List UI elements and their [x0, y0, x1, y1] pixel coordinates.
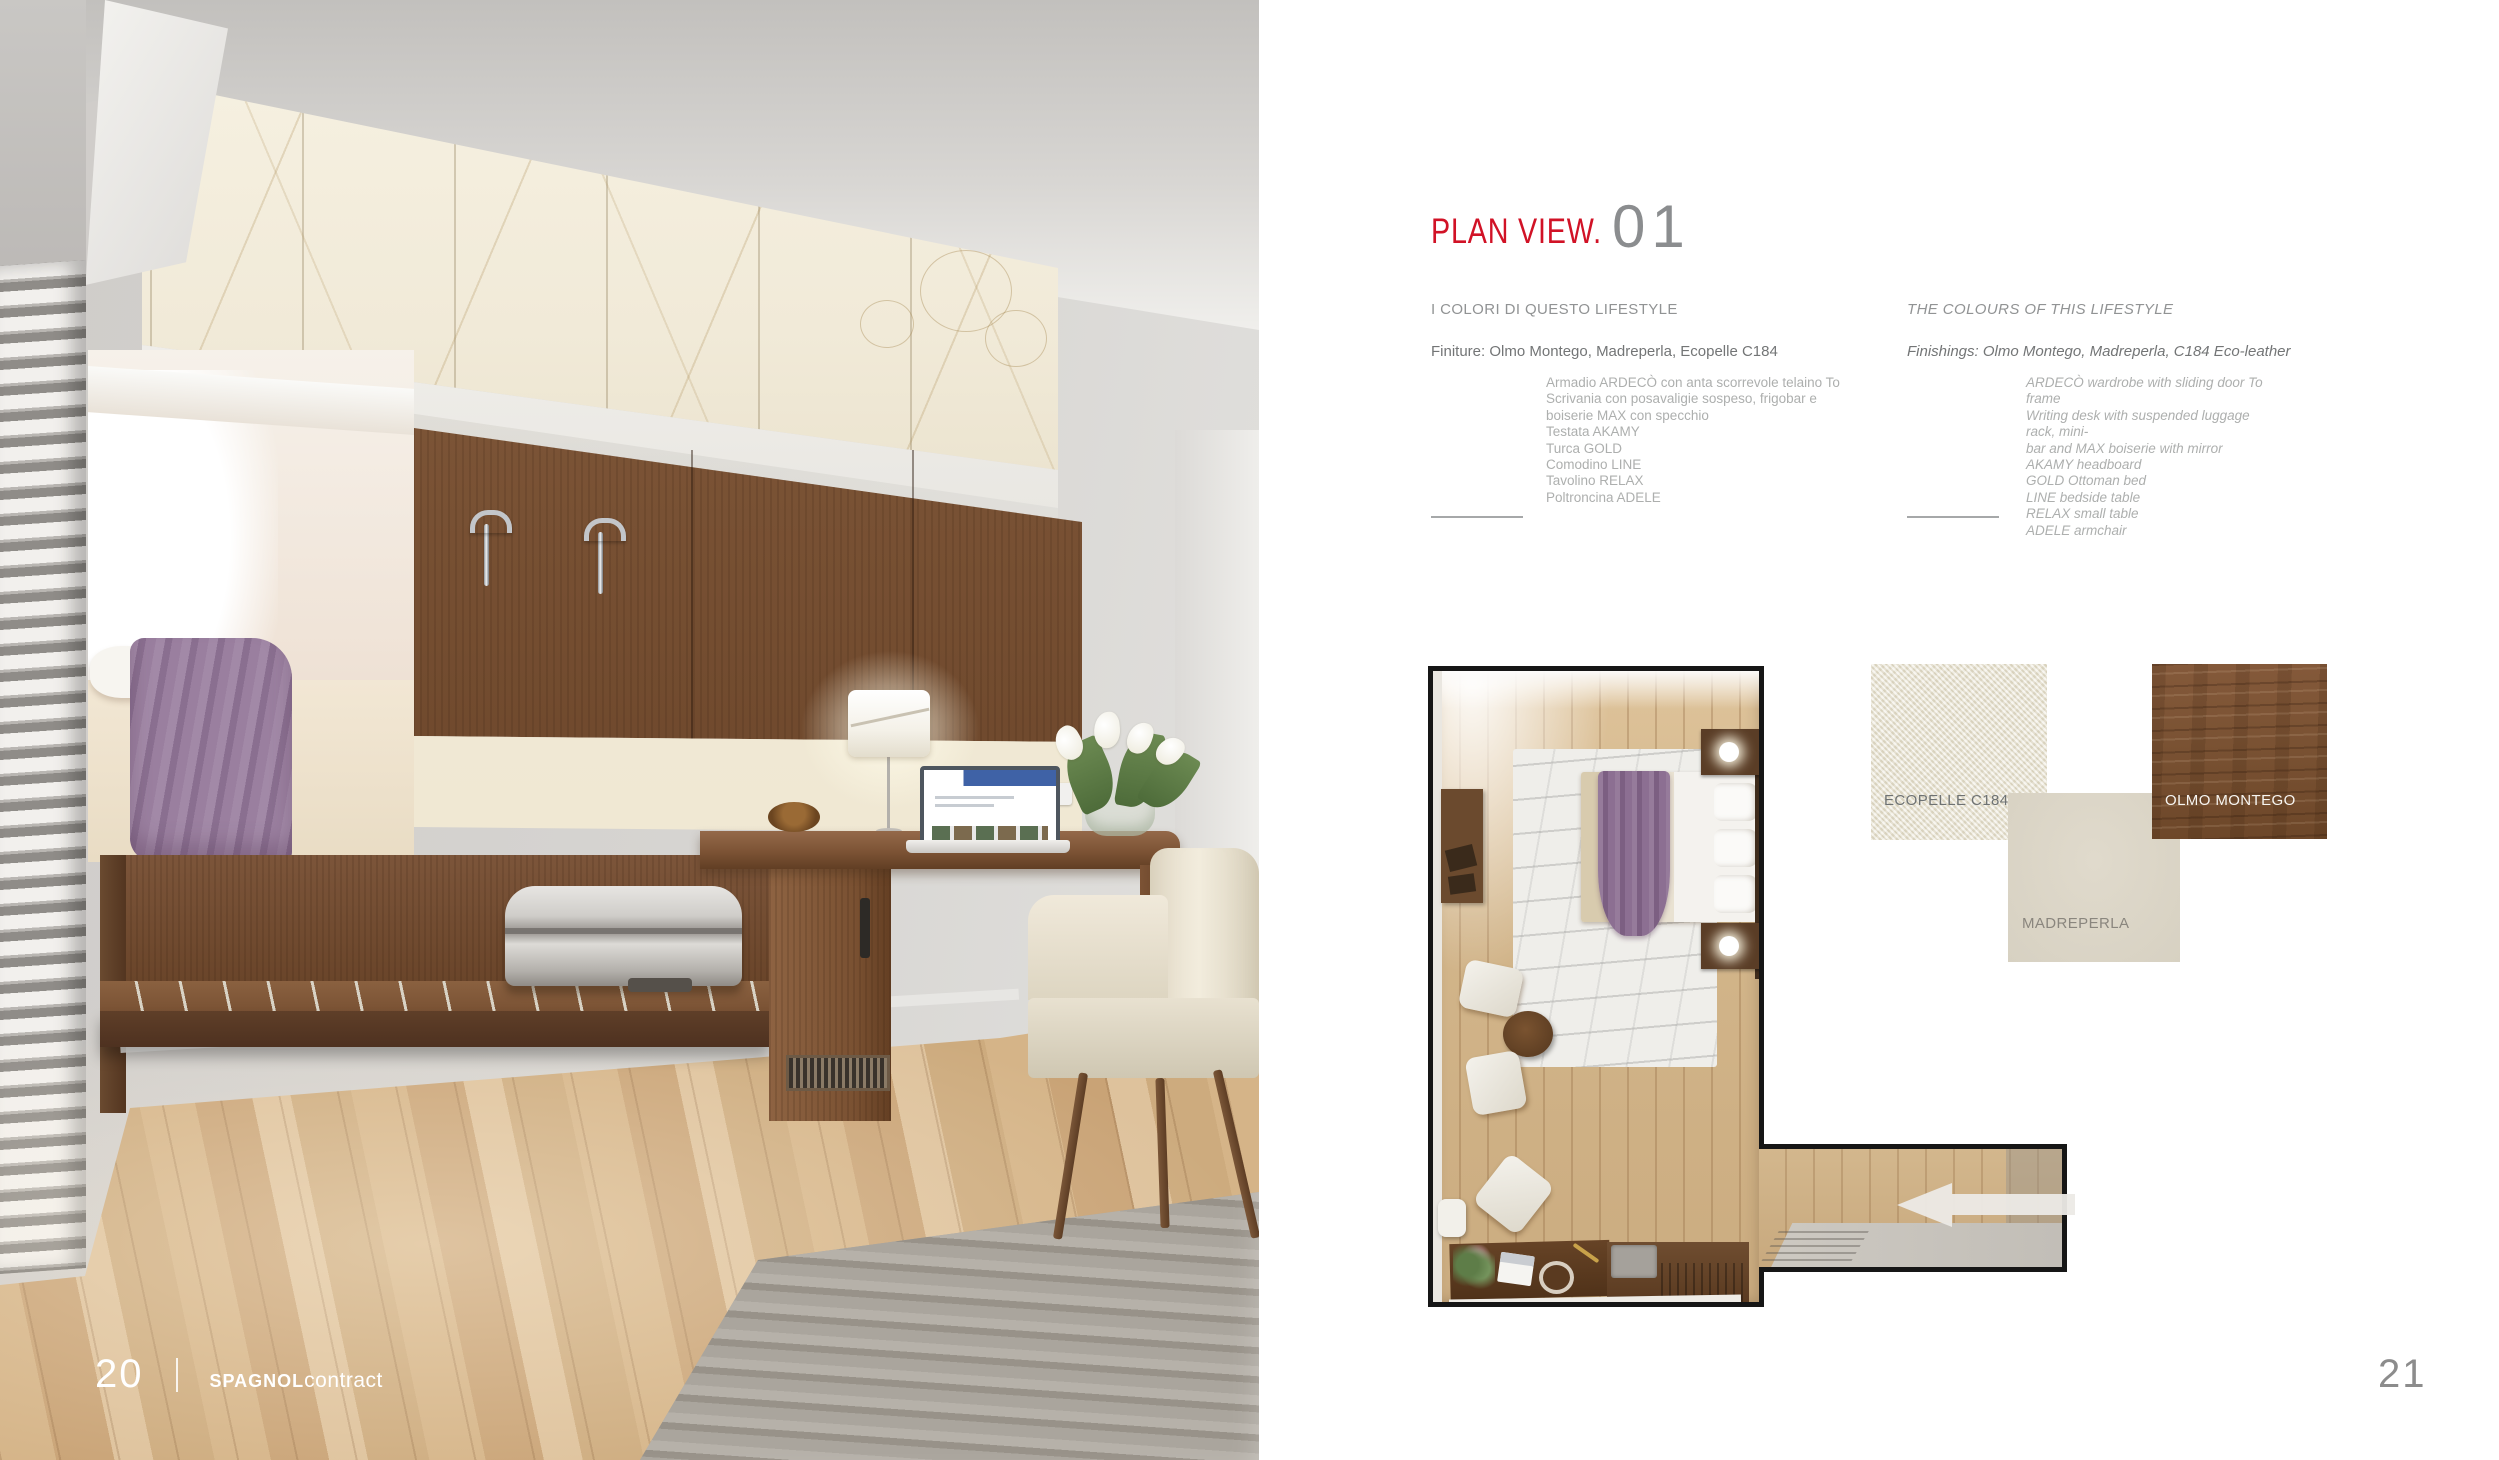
cabinet-decor-circle	[860, 300, 914, 348]
armchair-seat	[1028, 998, 1259, 1078]
desk-lamp-stem	[887, 757, 890, 831]
laptop-text-line	[935, 804, 994, 807]
list-item: RELAX small table	[2026, 506, 2281, 522]
plan-stool	[1438, 1199, 1466, 1237]
suitcase-band	[505, 928, 742, 934]
plan-pillow	[1714, 875, 1758, 913]
plan-bedside-table	[1701, 729, 1761, 775]
plan-pillow	[1714, 783, 1758, 821]
plan-unit-item	[1445, 844, 1477, 872]
plan-armchair	[1472, 1152, 1555, 1236]
plan-bedside-lamp	[1719, 936, 1739, 956]
plan-tray	[1539, 1261, 1574, 1294]
plan-pillow	[1714, 829, 1758, 867]
mirror-purple-throw	[130, 638, 292, 862]
footer-divider	[176, 1358, 178, 1392]
laptop-text-line	[935, 796, 1014, 799]
plan-round-table	[1503, 1011, 1553, 1057]
plan-bedside-table	[1701, 923, 1761, 969]
panel-seam	[691, 450, 693, 740]
list-item: ARDECÒ wardrobe with sliding door To fra…	[2026, 375, 2281, 408]
column-it-list: Armadio ARDECÒ con anta scorrevole telai…	[1546, 375, 1851, 506]
list-item: GOLD Ottoman bed	[2026, 473, 2281, 489]
plan-armchair	[1458, 959, 1525, 1019]
left-pillar	[0, 0, 86, 300]
column-en-rule	[1907, 516, 1999, 518]
minibar-vent	[786, 1055, 890, 1091]
swatch-olmo-montego: OLMO MONTEGO	[2152, 664, 2327, 839]
laptop-keyboard	[906, 840, 1070, 853]
list-item: LINE bedside table	[2026, 490, 2281, 506]
list-item: Poltroncina ADELE	[1546, 490, 1851, 506]
column-it-rule	[1431, 516, 1523, 518]
plan-armchair	[1464, 1050, 1527, 1116]
column-italian: I COLORI DI QUESTO LIFESTYLE Finiture: O…	[1431, 301, 1851, 506]
cabinet-decor-circle	[985, 310, 1047, 367]
plan-suitcase	[1611, 1245, 1657, 1278]
list-item: bar and MAX boiserie with mirror	[2026, 441, 2281, 457]
entry-arrow-icon	[1897, 1183, 1952, 1227]
armchair-arm	[1028, 895, 1168, 1000]
plan-wall-unit	[1441, 789, 1483, 903]
decor-bowl	[768, 802, 820, 832]
brand-contract: contract	[304, 1369, 383, 1393]
plan-laptop	[1497, 1252, 1535, 1286]
entry-arrow-icon	[1952, 1194, 2075, 1215]
list-item: Tavolino RELAX	[1546, 473, 1851, 489]
list-item: ADELE armchair	[2026, 523, 2281, 539]
wall-mirror	[88, 350, 414, 862]
page-number-right: 21	[2378, 1352, 2427, 1397]
cabinet-handle	[860, 898, 870, 958]
page-title: PLAN VIEW.	[1431, 212, 1602, 252]
brand-spagnol: SPAGNOL	[210, 1371, 305, 1392]
column-en-header: THE COLOURS OF THIS LIFESTYLE	[1907, 301, 2327, 318]
list-item: boiserie MAX con specchio	[1546, 408, 1851, 424]
suitcase	[505, 886, 742, 986]
room-photo: 20 SPAGNOLcontract	[0, 0, 1259, 1460]
swatch-label: ECOPELLE C184	[1884, 792, 2008, 809]
column-it-finishes: Finiture: Olmo Montego, Madreperla, Ecop…	[1431, 343, 1851, 360]
swatch-label: MADREPERLA	[2022, 915, 2129, 932]
list-item: Armadio ARDECÒ con anta scorrevole telai…	[1546, 375, 1851, 391]
floor-plan-main-room	[1428, 666, 1764, 1307]
list-item: Testata AKAMY	[1546, 424, 1851, 440]
plan-plant	[1453, 1245, 1495, 1289]
column-en-finishes: Finishings: Olmo Montego, Madreperla, C1…	[1907, 343, 2327, 360]
left-footer: 20 SPAGNOLcontract	[95, 1352, 383, 1397]
list-item: Turca GOLD	[1546, 441, 1851, 457]
catalog-spread: 20 SPAGNOLcontract PLAN VIEW. 01 I COLOR…	[0, 0, 2499, 1460]
laptop-webpage-header	[924, 770, 1056, 786]
list-item: AKAMY headboard	[2026, 457, 2281, 473]
suitcase-stand	[628, 978, 692, 992]
bench-front	[100, 1011, 770, 1047]
list-item: Scrivania con posavaligie sospeso, frigo…	[1546, 391, 1851, 407]
column-english: THE COLOURS OF THIS LIFESTYLE Finishings…	[1907, 301, 2327, 539]
column-en-list: ARDECÒ wardrobe with sliding door To fra…	[2026, 375, 2281, 539]
plan-window-light	[1433, 671, 1759, 709]
plan-bedside-lamp	[1719, 742, 1739, 762]
page-title-number: 01	[1612, 192, 1691, 261]
plan-unit-item	[1448, 873, 1476, 894]
column-it-header: I COLORI DI QUESTO LIFESTYLE	[1431, 301, 1851, 318]
list-item: Writing desk with suspended luggage rack…	[2026, 408, 2281, 441]
plan-purple-blanket	[1598, 771, 1670, 936]
page-number-left: 20	[95, 1352, 144, 1397]
list-item: Comodino LINE	[1546, 457, 1851, 473]
lily-flower	[1092, 711, 1121, 749]
swatch-label: OLMO MONTEGO	[2165, 792, 2296, 809]
